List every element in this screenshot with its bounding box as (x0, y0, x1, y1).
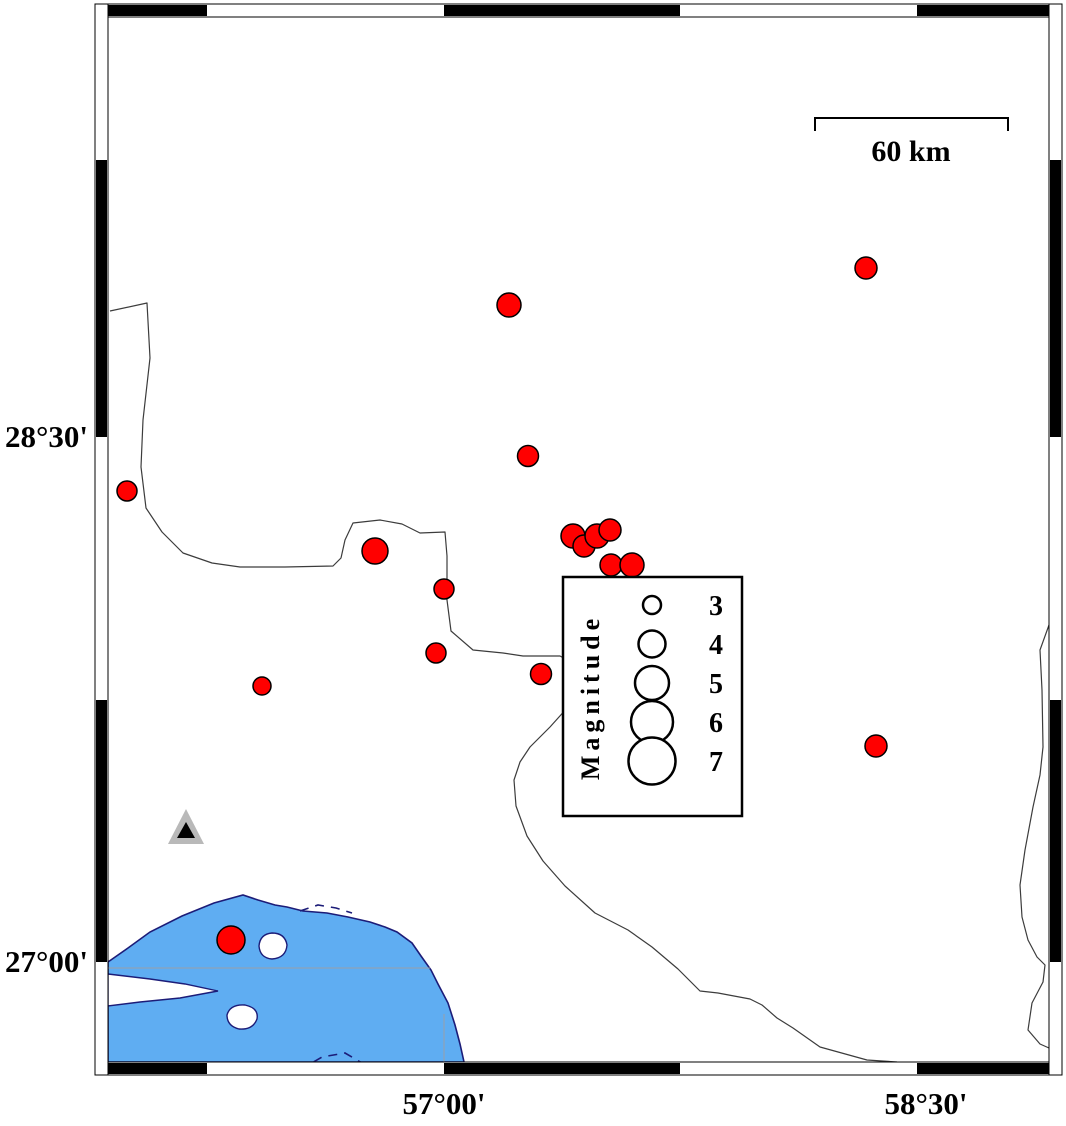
legend-magnitude-value: 3 (709, 591, 723, 622)
scale-bar-bracket (815, 118, 1008, 131)
frame-tick-black (1050, 700, 1061, 962)
magnitude-legend: Magnitude 34567 (563, 577, 742, 816)
epicenter-dot (426, 643, 446, 663)
epicenter-dot (362, 538, 388, 564)
epicenter-dot (531, 664, 552, 685)
epicenter-dot (253, 677, 271, 695)
sea-polygon (108, 895, 464, 1062)
station-marker (168, 809, 204, 844)
frame-tick-black (917, 5, 1049, 16)
frame-tick-black (1050, 160, 1061, 437)
epicenter-dot (497, 293, 521, 317)
legend-magnitude-value: 4 (709, 630, 723, 661)
frame-tick-black (444, 5, 680, 16)
sea-layer (108, 895, 464, 1062)
island-polygon (259, 933, 287, 959)
latitude-label: 27°00' (5, 944, 88, 979)
epicenter-dot (518, 446, 539, 467)
longitude-label: 57°00' (402, 1086, 485, 1121)
epicenter-dot (117, 481, 137, 501)
map-canvas: 60 km Magnitude 34567 28°30'27°00'57°00'… (0, 0, 1066, 1126)
frame-tick-black (108, 5, 207, 16)
epicenter-dot (620, 553, 644, 577)
legend-magnitude-value: 6 (709, 708, 723, 739)
legend-title: Magnitude (576, 614, 605, 780)
frame-tick-black (96, 160, 107, 437)
island-polygon (227, 1005, 257, 1029)
scale-bar-label: 60 km (871, 135, 950, 168)
frame-tick-black (96, 700, 107, 962)
frame-tick-black (917, 1063, 1049, 1074)
epicenter-layer (117, 257, 887, 954)
epicenter-dot (434, 579, 454, 599)
legend-magnitude-circle (643, 596, 661, 614)
legend-magnitude-value: 7 (709, 747, 723, 778)
longitude-label: 58°30' (884, 1086, 967, 1121)
legend-magnitude-value: 5 (709, 669, 723, 700)
legend-magnitude-circle (629, 738, 676, 785)
epicenter-dot (599, 519, 621, 541)
epicenter-dot (855, 257, 877, 279)
frame-tick-black (444, 1063, 680, 1074)
scale-bar: 60 km (815, 118, 1008, 168)
legend-magnitude-circle (635, 666, 669, 700)
boundary-line (1020, 625, 1049, 1048)
epicenter-dot (600, 554, 622, 576)
epicenter-dot (865, 735, 887, 757)
legend-magnitude-circle (639, 631, 666, 658)
epicenter-dot (217, 926, 245, 954)
seismicity-map-figure: 60 km Magnitude 34567 28°30'27°00'57°00'… (0, 0, 1066, 1126)
latitude-label: 28°30' (5, 419, 88, 454)
frame-tick-black (108, 1063, 207, 1074)
